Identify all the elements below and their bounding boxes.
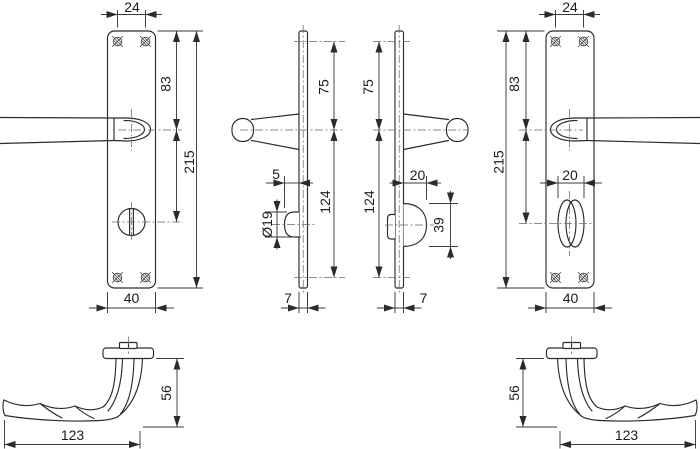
- dim-label-side-left-handle-to-bottom: 124: [317, 190, 333, 214]
- dim-label-lever-left-height: 56: [158, 385, 174, 401]
- dim-label-side-left-release-diameter: Ø19: [259, 211, 275, 238]
- dim-label-side-right-turn-projection: 20: [410, 167, 426, 183]
- dim-label-lever-right-height: 56: [506, 385, 522, 401]
- dim-label-side-left-thickness: 7: [284, 290, 292, 306]
- lever-handle-stub: [404, 114, 469, 150]
- dim-label-lever-right-length: 123: [615, 427, 639, 443]
- technical-drawing-page: 24 83 215 40 7: [0, 0, 700, 449]
- dim-label-side-right-thickness: 7: [420, 290, 428, 306]
- dim-label-lever-left-length: 123: [61, 427, 85, 443]
- drawing-canvas: 24 83 215 40 7: [0, 0, 700, 449]
- dim-label-front-right-hole-spacing: 24: [562, 0, 578, 15]
- dim-label-front-right-plate-width: 40: [563, 290, 579, 306]
- dim-label-front-right-top-to-handle: 83: [506, 76, 522, 92]
- dim-label-side-right-knob-height: 39: [431, 217, 447, 233]
- view-front-left-plate: 24 83 215 40: [0, 0, 203, 313]
- dim-label-front-left-plate-height: 215: [181, 150, 197, 174]
- dim-label-side-left-release-projection: 5: [272, 166, 280, 182]
- dim-label-side-right-top-to-handle: 75: [360, 79, 376, 95]
- lever-handle-stub: [232, 114, 299, 150]
- dim-label-front-left-top-to-handle: 83: [158, 76, 174, 92]
- view-lever-left: 123 56: [3, 337, 184, 449]
- dim-label-front-right-knob-width: 20: [562, 167, 578, 183]
- dim-label-front-left-plate-width: 40: [124, 290, 140, 306]
- backplate-profile: [395, 31, 404, 288]
- dim-label-front-right-plate-height: 215: [491, 150, 507, 174]
- dim-label-side-right-handle-to-bottom: 124: [361, 190, 377, 214]
- view-front-right-plate: 24 83 215 20 40: [491, 0, 700, 313]
- backplate: [546, 31, 594, 288]
- backplate-profile: [299, 31, 308, 288]
- dimensions-side-left: 75 5 Ø19 124 7: [259, 42, 334, 314]
- view-lever-right: 56 123: [506, 337, 697, 449]
- backplate: [108, 31, 156, 288]
- view-side-right-plate: 75 20 39 124 7: [360, 25, 468, 313]
- dim-label-side-left-top-to-handle: 75: [316, 79, 332, 95]
- dimensions-side-right: 75 20 39 124 7: [360, 42, 458, 314]
- release-back-profile: [388, 215, 396, 240]
- view-side-left-plate: 75 5 Ø19 124 7: [232, 25, 345, 313]
- dim-label-front-left-hole-spacing: 24: [124, 0, 140, 15]
